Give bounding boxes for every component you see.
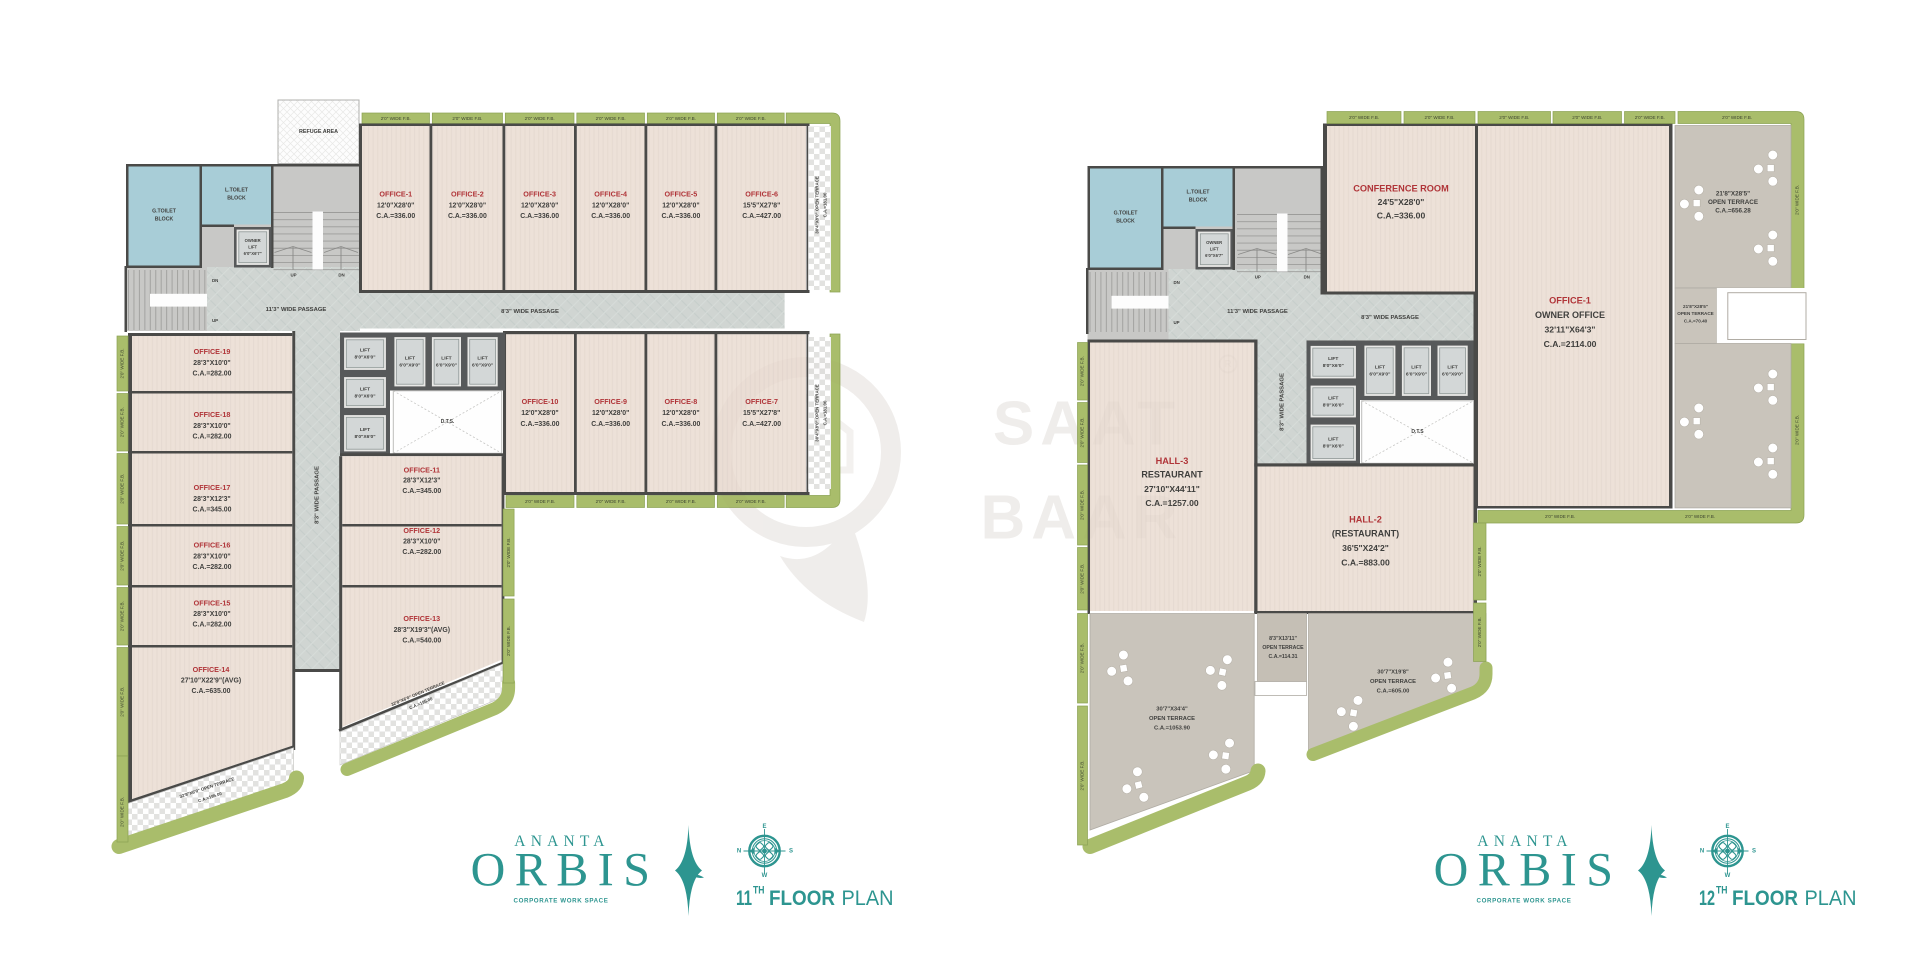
svg-text:6'0"X6'7": 6'0"X6'7" bbox=[244, 251, 262, 256]
svg-text:G.TOILET: G.TOILET bbox=[1114, 210, 1139, 216]
svg-text:2'0" WIDE F.B.: 2'0" WIDE F.B. bbox=[120, 687, 125, 717]
svg-text:8'0"X6'0": 8'0"X6'0" bbox=[354, 434, 375, 440]
svg-text:C.A.=181.00: C.A.=181.00 bbox=[823, 192, 828, 217]
svg-text:28'3"X12'3": 28'3"X12'3" bbox=[403, 477, 440, 484]
svg-text:8'3" WIDE PASSAGE: 8'3" WIDE PASSAGE bbox=[314, 466, 320, 524]
svg-text:2'0" WIDE F.B.: 2'0" WIDE F.B. bbox=[1080, 356, 1085, 386]
svg-text:C.A.=656.28: C.A.=656.28 bbox=[1715, 208, 1751, 215]
svg-text:LIFT: LIFT bbox=[1210, 247, 1219, 252]
svg-text:LIFT: LIFT bbox=[360, 386, 370, 392]
svg-text:28'3"X10'0": 28'3"X10'0" bbox=[193, 553, 230, 560]
svg-text:PLAN: PLAN bbox=[842, 887, 894, 910]
svg-text:2'0" WIDE F.B.: 2'0" WIDE F.B. bbox=[452, 116, 482, 121]
svg-text:11: 11 bbox=[736, 887, 752, 910]
svg-text:24'5"X28'0": 24'5"X28'0" bbox=[1378, 197, 1425, 207]
svg-text:C.A.=2114.00: C.A.=2114.00 bbox=[1544, 339, 1597, 349]
svg-text:2'0" WIDE F.B.: 2'0" WIDE F.B. bbox=[525, 499, 555, 504]
svg-text:W: W bbox=[762, 873, 768, 879]
svg-text:L.TOILET: L.TOILET bbox=[225, 187, 249, 193]
svg-text:C.A.=336.00: C.A.=336.00 bbox=[1377, 210, 1426, 220]
svg-text:C.A.=336.00: C.A.=336.00 bbox=[661, 421, 700, 428]
svg-text:21'8"X28'5": 21'8"X28'5" bbox=[1716, 191, 1750, 198]
svg-text:8'0"X6'0": 8'0"X6'0" bbox=[1323, 444, 1344, 450]
svg-text:S: S bbox=[1752, 849, 1756, 855]
svg-text:OFFICE-1: OFFICE-1 bbox=[1549, 295, 1591, 305]
svg-text:32'11"X64'3": 32'11"X64'3" bbox=[1545, 324, 1596, 334]
svg-text:12'0"X28'0": 12'0"X28'0" bbox=[449, 202, 486, 209]
svg-text:C.A.=282.00: C.A.=282.00 bbox=[402, 549, 441, 556]
svg-text:OFFICE-2: OFFICE-2 bbox=[451, 189, 484, 198]
svg-text:C.A.=181.00: C.A.=181.00 bbox=[823, 400, 828, 425]
svg-text:2'0" WIDE F.B.: 2'0" WIDE F.B. bbox=[1080, 643, 1085, 673]
svg-text:OFFICE-6: OFFICE-6 bbox=[745, 189, 778, 198]
svg-text:C.A.=282.00: C.A.=282.00 bbox=[193, 621, 232, 628]
svg-text:OFFICE-14: OFFICE-14 bbox=[193, 665, 230, 674]
svg-text:OFFICE-11: OFFICE-11 bbox=[404, 465, 440, 474]
svg-text:OWNER: OWNER bbox=[1206, 240, 1222, 245]
svg-text:30'4"X8'0" OPEN TERRACE: 30'4"X8'0" OPEN TERRACE bbox=[815, 384, 820, 442]
svg-text:28'3"X10'0": 28'3"X10'0" bbox=[193, 360, 230, 367]
svg-text:15'5"X27'8": 15'5"X27'8" bbox=[743, 202, 780, 209]
svg-text:FLOOR: FLOOR bbox=[769, 887, 835, 910]
svg-text:E: E bbox=[762, 824, 766, 830]
svg-text:C.A.=282.00: C.A.=282.00 bbox=[193, 433, 232, 440]
svg-text:OWNER: OWNER bbox=[245, 238, 261, 243]
svg-text:2'0" WIDE F.B.: 2'0" WIDE F.B. bbox=[1477, 617, 1482, 647]
svg-text:8'0"X6'0": 8'0"X6'0" bbox=[1323, 402, 1344, 408]
svg-text:2'0" WIDE F.B.: 2'0" WIDE F.B. bbox=[666, 499, 696, 504]
svg-text:C.A.=540.00: C.A.=540.00 bbox=[402, 637, 441, 644]
svg-text:6'0"X9'0": 6'0"X9'0" bbox=[1369, 372, 1390, 378]
svg-text:12'0"X28'0": 12'0"X28'0" bbox=[377, 202, 414, 209]
svg-text:BLOCK: BLOCK bbox=[1116, 218, 1135, 224]
svg-text:CORPORATE WORK SPACE: CORPORATE WORK SPACE bbox=[1477, 898, 1572, 905]
svg-text:12'0"X28'0": 12'0"X28'0" bbox=[592, 410, 629, 417]
svg-text:28'3"X10'0": 28'3"X10'0" bbox=[193, 611, 230, 618]
svg-text:LIFT: LIFT bbox=[1328, 356, 1338, 362]
svg-text:C.A.=336.00: C.A.=336.00 bbox=[520, 213, 559, 220]
svg-text:C.A.=605.00: C.A.=605.00 bbox=[1377, 689, 1410, 695]
svg-text:2'0" WIDE F.B.: 2'0" WIDE F.B. bbox=[120, 474, 125, 504]
svg-text:30'7"X34'4": 30'7"X34'4" bbox=[1156, 707, 1188, 713]
svg-text:D.T.S: D.T.S bbox=[1411, 429, 1424, 435]
svg-text:ORBIS: ORBIS bbox=[1434, 844, 1623, 897]
svg-text:TH: TH bbox=[1716, 885, 1728, 897]
svg-text:11'3" WIDE PASSAGE: 11'3" WIDE PASSAGE bbox=[1227, 309, 1288, 315]
svg-text:LIFT: LIFT bbox=[360, 427, 370, 433]
svg-text:8'0"X6'0": 8'0"X6'0" bbox=[354, 393, 375, 399]
svg-text:OPEN TERRACE: OPEN TERRACE bbox=[1677, 311, 1714, 316]
svg-text:BLOCK: BLOCK bbox=[155, 216, 174, 222]
svg-text:BLOCK: BLOCK bbox=[227, 195, 246, 201]
svg-text:OFFICE-10: OFFICE-10 bbox=[522, 397, 559, 406]
svg-text:27'10"X22'9"(AVG): 27'10"X22'9"(AVG) bbox=[181, 677, 241, 684]
svg-text:2'0" WIDE F.B.: 2'0" WIDE F.B. bbox=[506, 626, 511, 656]
svg-text:DN: DN bbox=[212, 278, 218, 283]
svg-text:6'0"X9'0": 6'0"X9'0" bbox=[1406, 372, 1427, 378]
svg-text:C.A.=336.00: C.A.=336.00 bbox=[448, 213, 487, 220]
svg-text:OFFICE-9: OFFICE-9 bbox=[594, 397, 627, 406]
svg-text:OFFICE-17: OFFICE-17 bbox=[194, 483, 231, 492]
svg-text:BAAR: BAAR bbox=[980, 483, 1183, 552]
svg-text:REFUGE AREA: REFUGE AREA bbox=[299, 129, 338, 135]
svg-text:C.A.=336.00: C.A.=336.00 bbox=[376, 213, 415, 220]
svg-text:8'3" WIDE PASSAGE: 8'3" WIDE PASSAGE bbox=[501, 309, 559, 315]
svg-text:2'0" WIDE F.B.: 2'0" WIDE F.B. bbox=[1424, 115, 1454, 120]
svg-text:28'3"X19'3"(AVG): 28'3"X19'3"(AVG) bbox=[394, 627, 450, 634]
svg-text:RESTAURANT: RESTAURANT bbox=[1141, 469, 1203, 479]
svg-text:30'4"X8'0" OPEN TERRACE: 30'4"X8'0" OPEN TERRACE bbox=[815, 176, 820, 234]
svg-text:UP: UP bbox=[290, 273, 296, 278]
svg-text:15'5"X27'8": 15'5"X27'8" bbox=[743, 410, 780, 417]
svg-text:OFFICE-8: OFFICE-8 bbox=[665, 397, 698, 406]
svg-text:LIFT: LIFT bbox=[1328, 395, 1338, 401]
svg-text:C.A.=883.00: C.A.=883.00 bbox=[1341, 557, 1390, 567]
svg-text:C.A.=336.00: C.A.=336.00 bbox=[661, 213, 700, 220]
svg-text:OPEN TERRACE: OPEN TERRACE bbox=[1370, 679, 1416, 685]
svg-text:OFFICE-19: OFFICE-19 bbox=[194, 347, 231, 356]
svg-text:2'0" WIDE F.B.: 2'0" WIDE F.B. bbox=[120, 797, 125, 827]
svg-text:D.T.S.: D.T.S. bbox=[441, 419, 455, 425]
svg-text:OFFICE-5: OFFICE-5 bbox=[665, 189, 698, 198]
svg-text:2'0" WIDE F.B.: 2'0" WIDE F.B. bbox=[120, 601, 125, 631]
svg-text:C.A.=427.00: C.A.=427.00 bbox=[742, 421, 781, 428]
svg-text:12'0"X28'0": 12'0"X28'0" bbox=[521, 410, 558, 417]
svg-text:L.TOILET: L.TOILET bbox=[1187, 189, 1211, 195]
svg-text:C.A.=336.00: C.A.=336.00 bbox=[591, 421, 630, 428]
svg-text:11'3" WIDE PASSAGE: 11'3" WIDE PASSAGE bbox=[266, 307, 327, 313]
svg-text:BLOCK: BLOCK bbox=[1189, 197, 1208, 203]
svg-text:LIFT: LIFT bbox=[1447, 365, 1457, 371]
svg-text:36'5"X24'2": 36'5"X24'2" bbox=[1342, 543, 1389, 553]
svg-text:12'0"X28'0": 12'0"X28'0" bbox=[662, 410, 699, 417]
svg-text:OPEN TERRACE: OPEN TERRACE bbox=[1708, 199, 1758, 206]
svg-text:OFFICE-1: OFFICE-1 bbox=[379, 189, 412, 198]
svg-text:28'3"X10'0": 28'3"X10'0" bbox=[193, 423, 230, 430]
svg-text:2'0" WIDE F.B.: 2'0" WIDE F.B. bbox=[120, 348, 125, 378]
svg-text:LIFT: LIFT bbox=[360, 348, 370, 354]
svg-text:2'0" WIDE F.B.: 2'0" WIDE F.B. bbox=[1080, 564, 1085, 594]
svg-text:FLOOR: FLOOR bbox=[1732, 887, 1798, 910]
svg-text:OFFICE-18: OFFICE-18 bbox=[194, 410, 231, 419]
svg-text:2'0" WIDE F.B.: 2'0" WIDE F.B. bbox=[1795, 415, 1800, 445]
svg-text:ORBIS: ORBIS bbox=[471, 844, 660, 897]
svg-text:2'0" WIDE F.B.: 2'0" WIDE F.B. bbox=[596, 499, 626, 504]
svg-text:DN: DN bbox=[1304, 275, 1310, 280]
svg-text:N: N bbox=[1700, 849, 1704, 855]
svg-text:LIFT: LIFT bbox=[441, 356, 451, 362]
svg-text:6'0"X9'0": 6'0"X9'0" bbox=[436, 363, 457, 369]
svg-text:2'0" WIDE F.B.: 2'0" WIDE F.B. bbox=[120, 407, 125, 437]
svg-text:2'0" WIDE F.B.: 2'0" WIDE F.B. bbox=[120, 541, 125, 571]
svg-text:12: 12 bbox=[1699, 887, 1715, 910]
svg-text:8'3" WIDE PASSAGE: 8'3" WIDE PASSAGE bbox=[1280, 373, 1286, 431]
svg-text:OPEN TERRACE: OPEN TERRACE bbox=[1262, 645, 1304, 651]
svg-text:DN: DN bbox=[1174, 280, 1180, 285]
svg-text:6'0"X9'0": 6'0"X9'0" bbox=[472, 363, 493, 369]
svg-text:HALL-2: HALL-2 bbox=[1349, 514, 1382, 524]
svg-text:E: E bbox=[1725, 824, 1729, 830]
svg-text:UP: UP bbox=[1174, 320, 1180, 325]
svg-text:C.A.=114.31: C.A.=114.31 bbox=[1269, 654, 1298, 660]
svg-text:C.A.=635.00: C.A.=635.00 bbox=[192, 688, 231, 695]
svg-text:OFFICE-16: OFFICE-16 bbox=[194, 540, 231, 549]
svg-text:12'0"X28'0": 12'0"X28'0" bbox=[592, 202, 629, 209]
svg-text:C.A.=427.00: C.A.=427.00 bbox=[742, 213, 781, 220]
svg-text:OFFICE-4: OFFICE-4 bbox=[594, 189, 627, 198]
svg-text:6'0"X9'0": 6'0"X9'0" bbox=[399, 363, 420, 369]
svg-text:CONFERENCE ROOM: CONFERENCE ROOM bbox=[1353, 183, 1449, 193]
svg-text:LIFT: LIFT bbox=[1411, 365, 1421, 371]
svg-text:2'0" WIDE F.B.: 2'0" WIDE F.B. bbox=[1572, 115, 1602, 120]
svg-text:TH: TH bbox=[753, 885, 765, 897]
svg-text:C.A.=336.00: C.A.=336.00 bbox=[591, 213, 630, 220]
svg-text:C.A.=345.00: C.A.=345.00 bbox=[193, 506, 232, 513]
svg-text:8'0"X6'0": 8'0"X6'0" bbox=[354, 355, 375, 361]
svg-text:6'0"X9'0": 6'0"X9'0" bbox=[1442, 372, 1463, 378]
svg-text:CORPORATE WORK SPACE: CORPORATE WORK SPACE bbox=[514, 898, 609, 905]
svg-text:C.A.=336.00: C.A.=336.00 bbox=[521, 421, 560, 428]
svg-text:(RESTAURANT): (RESTAURANT) bbox=[1332, 528, 1399, 538]
svg-text:8'3" WIDE PASSAGE: 8'3" WIDE PASSAGE bbox=[1361, 315, 1419, 321]
svg-text:2'0" WIDE F.B.: 2'0" WIDE F.B. bbox=[1722, 115, 1752, 120]
svg-text:OWNER OFFICE: OWNER OFFICE bbox=[1535, 310, 1605, 320]
svg-text:2'0" WIDE F.B.: 2'0" WIDE F.B. bbox=[666, 116, 696, 121]
svg-text:W: W bbox=[1725, 873, 1731, 879]
svg-text:C.A.=70.40: C.A.=70.40 bbox=[1684, 319, 1708, 324]
svg-text:2'0" WIDE F.B.: 2'0" WIDE F.B. bbox=[1499, 115, 1529, 120]
svg-text:2'0" WIDE F.B.: 2'0" WIDE F.B. bbox=[596, 116, 626, 121]
svg-text:LIFT: LIFT bbox=[248, 245, 257, 250]
svg-text:2'0" WIDE F.B.: 2'0" WIDE F.B. bbox=[381, 116, 411, 121]
svg-text:2'0" WIDE F.B.: 2'0" WIDE F.B. bbox=[1685, 514, 1715, 519]
svg-text:C.A.=282.00: C.A.=282.00 bbox=[193, 370, 232, 377]
svg-text:OFFICE-12: OFFICE-12 bbox=[403, 526, 440, 535]
svg-text:OPEN TERRACE: OPEN TERRACE bbox=[1149, 716, 1195, 722]
svg-text:LIFT: LIFT bbox=[1375, 365, 1385, 371]
svg-text:2'0" WIDE F.B.: 2'0" WIDE F.B. bbox=[1635, 115, 1665, 120]
svg-text:OFFICE-15: OFFICE-15 bbox=[194, 598, 231, 607]
svg-text:UP: UP bbox=[1255, 275, 1261, 280]
svg-text:2'0" WIDE F.B.: 2'0" WIDE F.B. bbox=[1795, 185, 1800, 215]
svg-text:C.A.=282.00: C.A.=282.00 bbox=[193, 564, 232, 571]
svg-text:2'0" WIDE F.B.: 2'0" WIDE F.B. bbox=[506, 537, 511, 567]
svg-text:2'0" WIDE F.B.: 2'0" WIDE F.B. bbox=[736, 116, 766, 121]
svg-text:2'0" WIDE F.B.: 2'0" WIDE F.B. bbox=[525, 116, 555, 121]
svg-text:21'8"X28'5": 21'8"X28'5" bbox=[1683, 304, 1708, 309]
svg-text:LIFT: LIFT bbox=[477, 356, 487, 362]
svg-text:R: R bbox=[1224, 359, 1232, 370]
svg-text:C.A.=1053.90: C.A.=1053.90 bbox=[1154, 726, 1190, 732]
svg-text:PLAN: PLAN bbox=[1805, 887, 1857, 910]
svg-text:2'0" WIDE F.B.: 2'0" WIDE F.B. bbox=[1349, 115, 1379, 120]
svg-text:8'0"X6'0": 8'0"X6'0" bbox=[1323, 363, 1344, 369]
svg-text:2'0" WIDE F.B.: 2'0" WIDE F.B. bbox=[1545, 514, 1575, 519]
svg-text:N: N bbox=[737, 849, 741, 855]
svg-text:12'0"X28'0": 12'0"X28'0" bbox=[662, 202, 699, 209]
svg-text:LIFT: LIFT bbox=[1328, 437, 1338, 443]
svg-text:28'3"X10'0": 28'3"X10'0" bbox=[403, 538, 440, 545]
svg-text:DN: DN bbox=[338, 273, 344, 278]
svg-text:6'0"X6'7": 6'0"X6'7" bbox=[1205, 253, 1223, 258]
svg-text:S: S bbox=[789, 849, 793, 855]
svg-text:OFFICE-3: OFFICE-3 bbox=[523, 189, 556, 198]
svg-text:2'0" WIDE F.B.: 2'0" WIDE F.B. bbox=[1477, 546, 1482, 576]
svg-text:C.A.=345.00: C.A.=345.00 bbox=[402, 488, 441, 495]
svg-text:28'3"X12'3": 28'3"X12'3" bbox=[193, 496, 230, 503]
svg-text:SAAT: SAAT bbox=[993, 389, 1181, 458]
svg-text:LIFT: LIFT bbox=[405, 356, 415, 362]
svg-text:30'7"X19'8": 30'7"X19'8" bbox=[1377, 670, 1409, 676]
svg-text:OFFICE-13: OFFICE-13 bbox=[403, 614, 440, 623]
svg-text:UP: UP bbox=[212, 318, 218, 323]
svg-text:2'0" WIDE F.B.: 2'0" WIDE F.B. bbox=[1080, 760, 1085, 790]
svg-text:12'0"X28'0": 12'0"X28'0" bbox=[521, 202, 558, 209]
svg-text:G.TOILET: G.TOILET bbox=[152, 208, 177, 214]
svg-text:8'3"X13'11": 8'3"X13'11" bbox=[1269, 636, 1297, 642]
